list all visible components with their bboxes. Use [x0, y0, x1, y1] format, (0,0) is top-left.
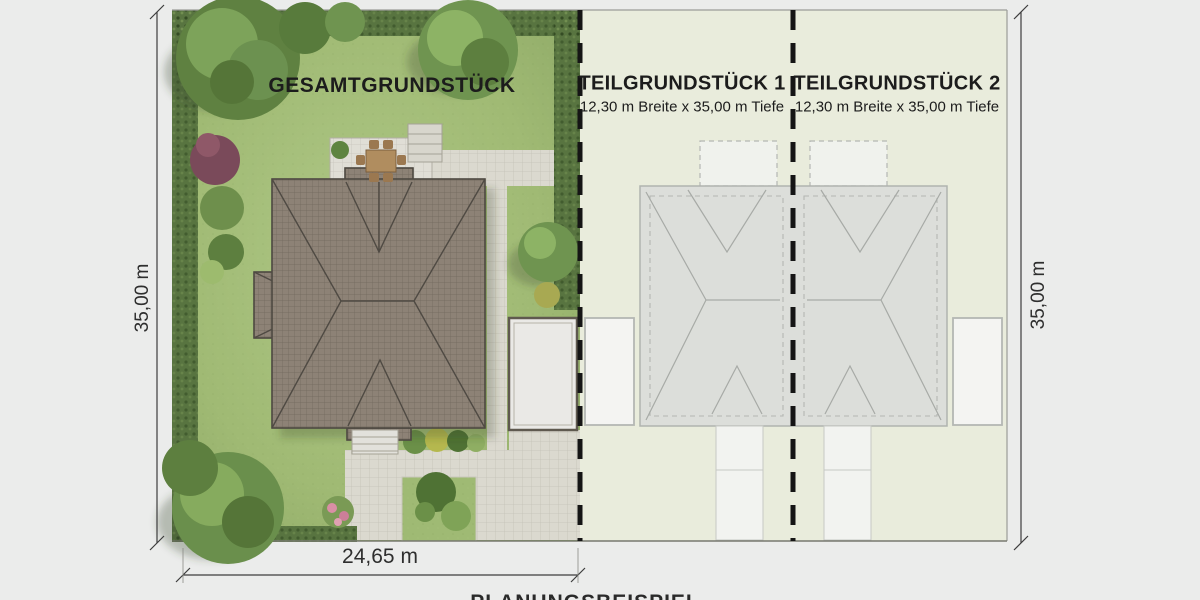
ghost-terrace-2: [810, 141, 887, 186]
ghost-garage-2: [953, 318, 1002, 425]
bottom-caption-cutoff: PLANUNGSBEISPIEL: [470, 591, 700, 600]
total-plot-title: GESAMTGRUNDSTÜCK: [268, 74, 515, 98]
flower-bush: [322, 496, 354, 528]
terrace-steps: [408, 124, 442, 162]
subplot1-size: 12,30 m Breite x 35,00 m Tiefe: [580, 99, 784, 116]
subplot2-title: TEILGRUNDSTÜCK 2: [793, 73, 1000, 96]
dim-bottom-label: 24,65 m: [342, 545, 418, 569]
garage: [509, 318, 577, 430]
subplot2-size: 12,30 m Breite x 35,00 m Tiefe: [795, 99, 999, 116]
dim-left-label: 35,00 m: [132, 264, 154, 333]
main-house-roof: [254, 168, 485, 440]
dim-right-label: 35,00 m: [1028, 261, 1050, 330]
ghost-terrace-1: [700, 141, 777, 186]
subplot1-title: TEILGRUNDSTÜCK 1: [578, 73, 785, 96]
potted-plant: [331, 141, 349, 159]
ghost-garage-1: [585, 318, 634, 425]
site-plan: GESAMTGRUNDSTÜCK TEILGRUNDSTÜCK 1 12,30 …: [0, 0, 1200, 600]
entrance-steps: [352, 430, 398, 454]
